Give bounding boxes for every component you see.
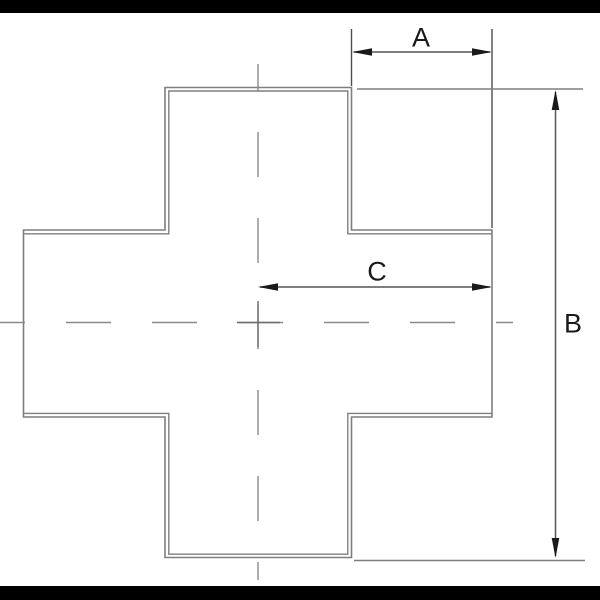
- dimension-c-label: C: [367, 259, 387, 286]
- dim-a-arrowhead-right: [472, 48, 492, 56]
- centerlines: [0, 64, 513, 580]
- dim-c-arrowhead-left: [258, 283, 278, 291]
- cross-fitting-technical-drawing: [0, 0, 600, 600]
- dimension-a-label: A: [412, 25, 430, 52]
- dim-a-arrowhead-left: [352, 48, 372, 56]
- dimension-b-label: B: [564, 311, 582, 338]
- dimension-b: [354, 89, 585, 561]
- dim-c-arrowhead-right: [472, 283, 492, 291]
- dimension-a: [352, 29, 493, 228]
- dim-b-arrowhead-top: [552, 90, 560, 110]
- dim-b-arrowhead-bottom: [552, 538, 560, 558]
